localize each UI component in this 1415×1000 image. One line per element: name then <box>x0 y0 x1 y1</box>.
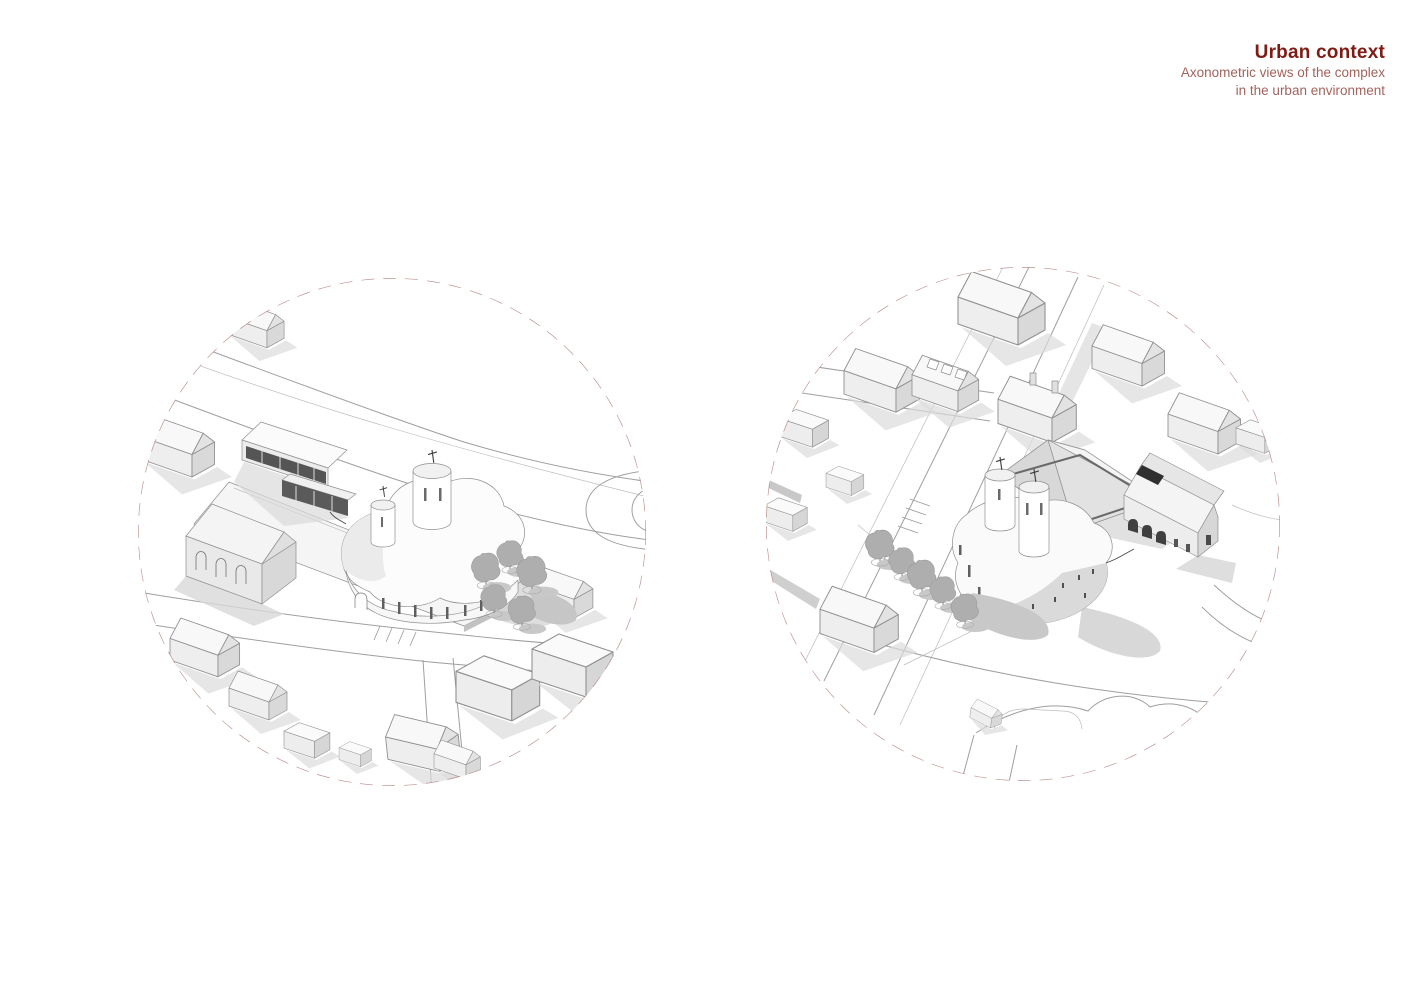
page-title: Urban context <box>1181 42 1385 64</box>
page-subtitle-line2: in the urban environment <box>1181 82 1385 100</box>
house <box>229 301 297 361</box>
building-block <box>339 742 379 774</box>
chapel-house <box>383 706 491 790</box>
house <box>229 671 301 734</box>
bell-tower-small <box>371 485 395 547</box>
building-block <box>826 466 872 504</box>
house <box>142 416 232 495</box>
arched-door <box>355 593 367 610</box>
parish-house <box>1124 453 1236 583</box>
axonometric-view-2 <box>762 263 1284 785</box>
building-block <box>532 634 631 715</box>
house <box>958 272 1066 367</box>
bell-tower-large <box>413 449 451 529</box>
door <box>1206 535 1211 545</box>
cross-icon <box>379 485 388 497</box>
building-block <box>192 737 242 778</box>
page-subtitle-line1: Axonometric views of the complex <box>1181 64 1385 82</box>
axonometric-drawing-1 <box>134 274 650 790</box>
axonometric-view-1 <box>134 274 650 790</box>
house <box>1092 325 1182 404</box>
building-block <box>780 409 839 458</box>
building-block <box>764 498 817 541</box>
cross-icon <box>996 456 1007 470</box>
axonometric-drawing-2 <box>762 263 1284 785</box>
scene-right <box>762 263 1284 785</box>
presentation-sheet: { "page": { "background": "#ffffff", "he… <box>0 0 1415 1000</box>
building-block <box>284 723 340 769</box>
cross-icon <box>428 449 439 463</box>
ground-shadow <box>1078 607 1161 658</box>
header-block: Urban context Axonometric views of the c… <box>1181 42 1385 100</box>
scene-left <box>134 278 650 790</box>
house <box>968 698 1012 738</box>
crosswalk-marks <box>898 499 930 533</box>
